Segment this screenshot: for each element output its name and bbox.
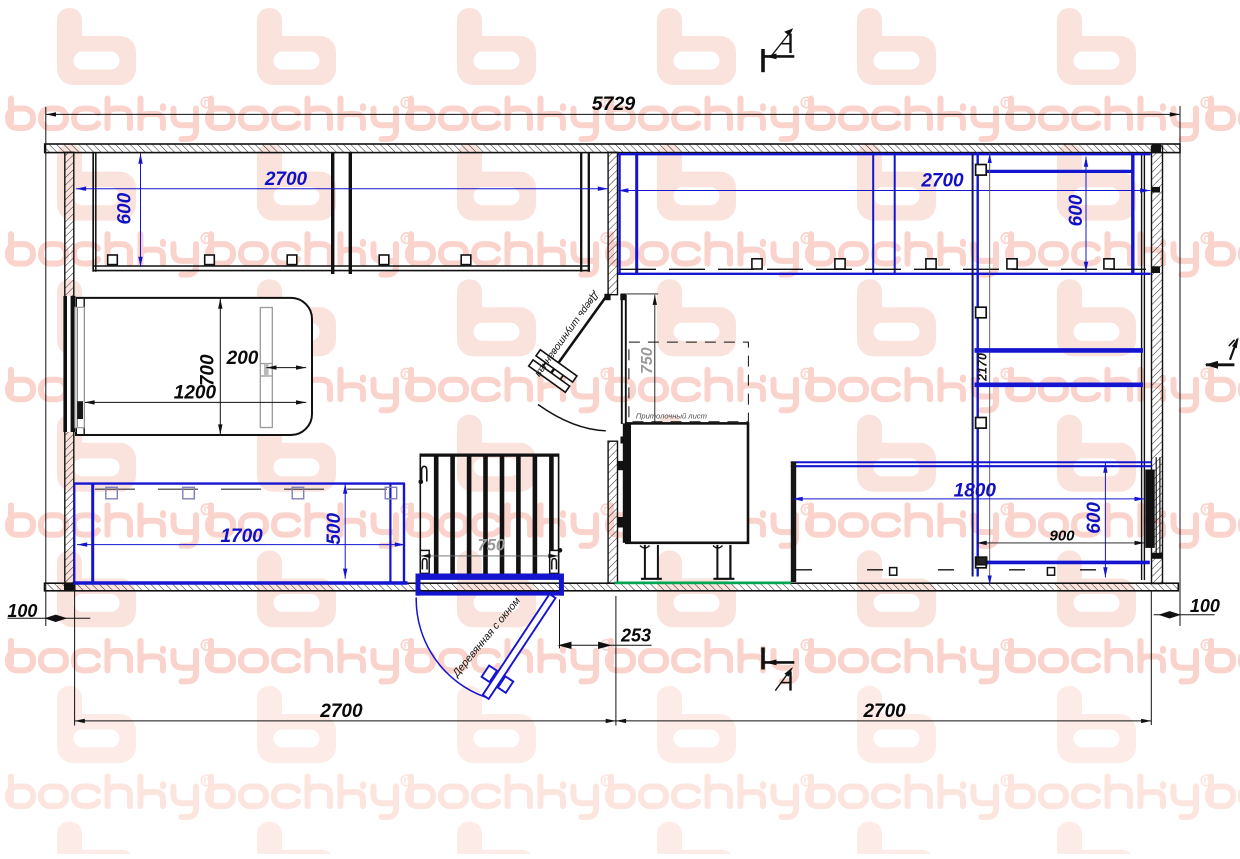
svg-text:253: 253 [620, 626, 651, 646]
svg-text:600: 600 [115, 192, 136, 224]
svg-text:Притолочный лист: Притолочный лист [636, 412, 707, 421]
svg-text:500: 500 [324, 513, 345, 545]
svg-text:900: 900 [1049, 527, 1075, 544]
svg-text:750: 750 [478, 537, 506, 555]
svg-text:5729: 5729 [592, 93, 636, 115]
svg-text:600: 600 [1084, 502, 1105, 534]
svg-text:2700: 2700 [264, 169, 308, 190]
svg-text:100: 100 [1190, 596, 1220, 616]
svg-text:750: 750 [639, 347, 656, 374]
svg-text:2700: 2700 [319, 701, 363, 722]
svg-text:1700: 1700 [220, 526, 263, 547]
svg-text:Дверь шпунтованная: Дверь шпунтованная [532, 289, 601, 379]
svg-text:100: 100 [7, 601, 37, 621]
svg-text:2700: 2700 [920, 171, 964, 192]
svg-text:1800: 1800 [954, 481, 997, 502]
svg-text:2700: 2700 [862, 701, 906, 722]
svg-text:2170: 2170 [976, 353, 990, 382]
svg-text:1200: 1200 [174, 383, 217, 404]
svg-text:600: 600 [1066, 194, 1087, 226]
svg-text:200: 200 [226, 348, 259, 369]
svg-text:700: 700 [198, 354, 219, 386]
